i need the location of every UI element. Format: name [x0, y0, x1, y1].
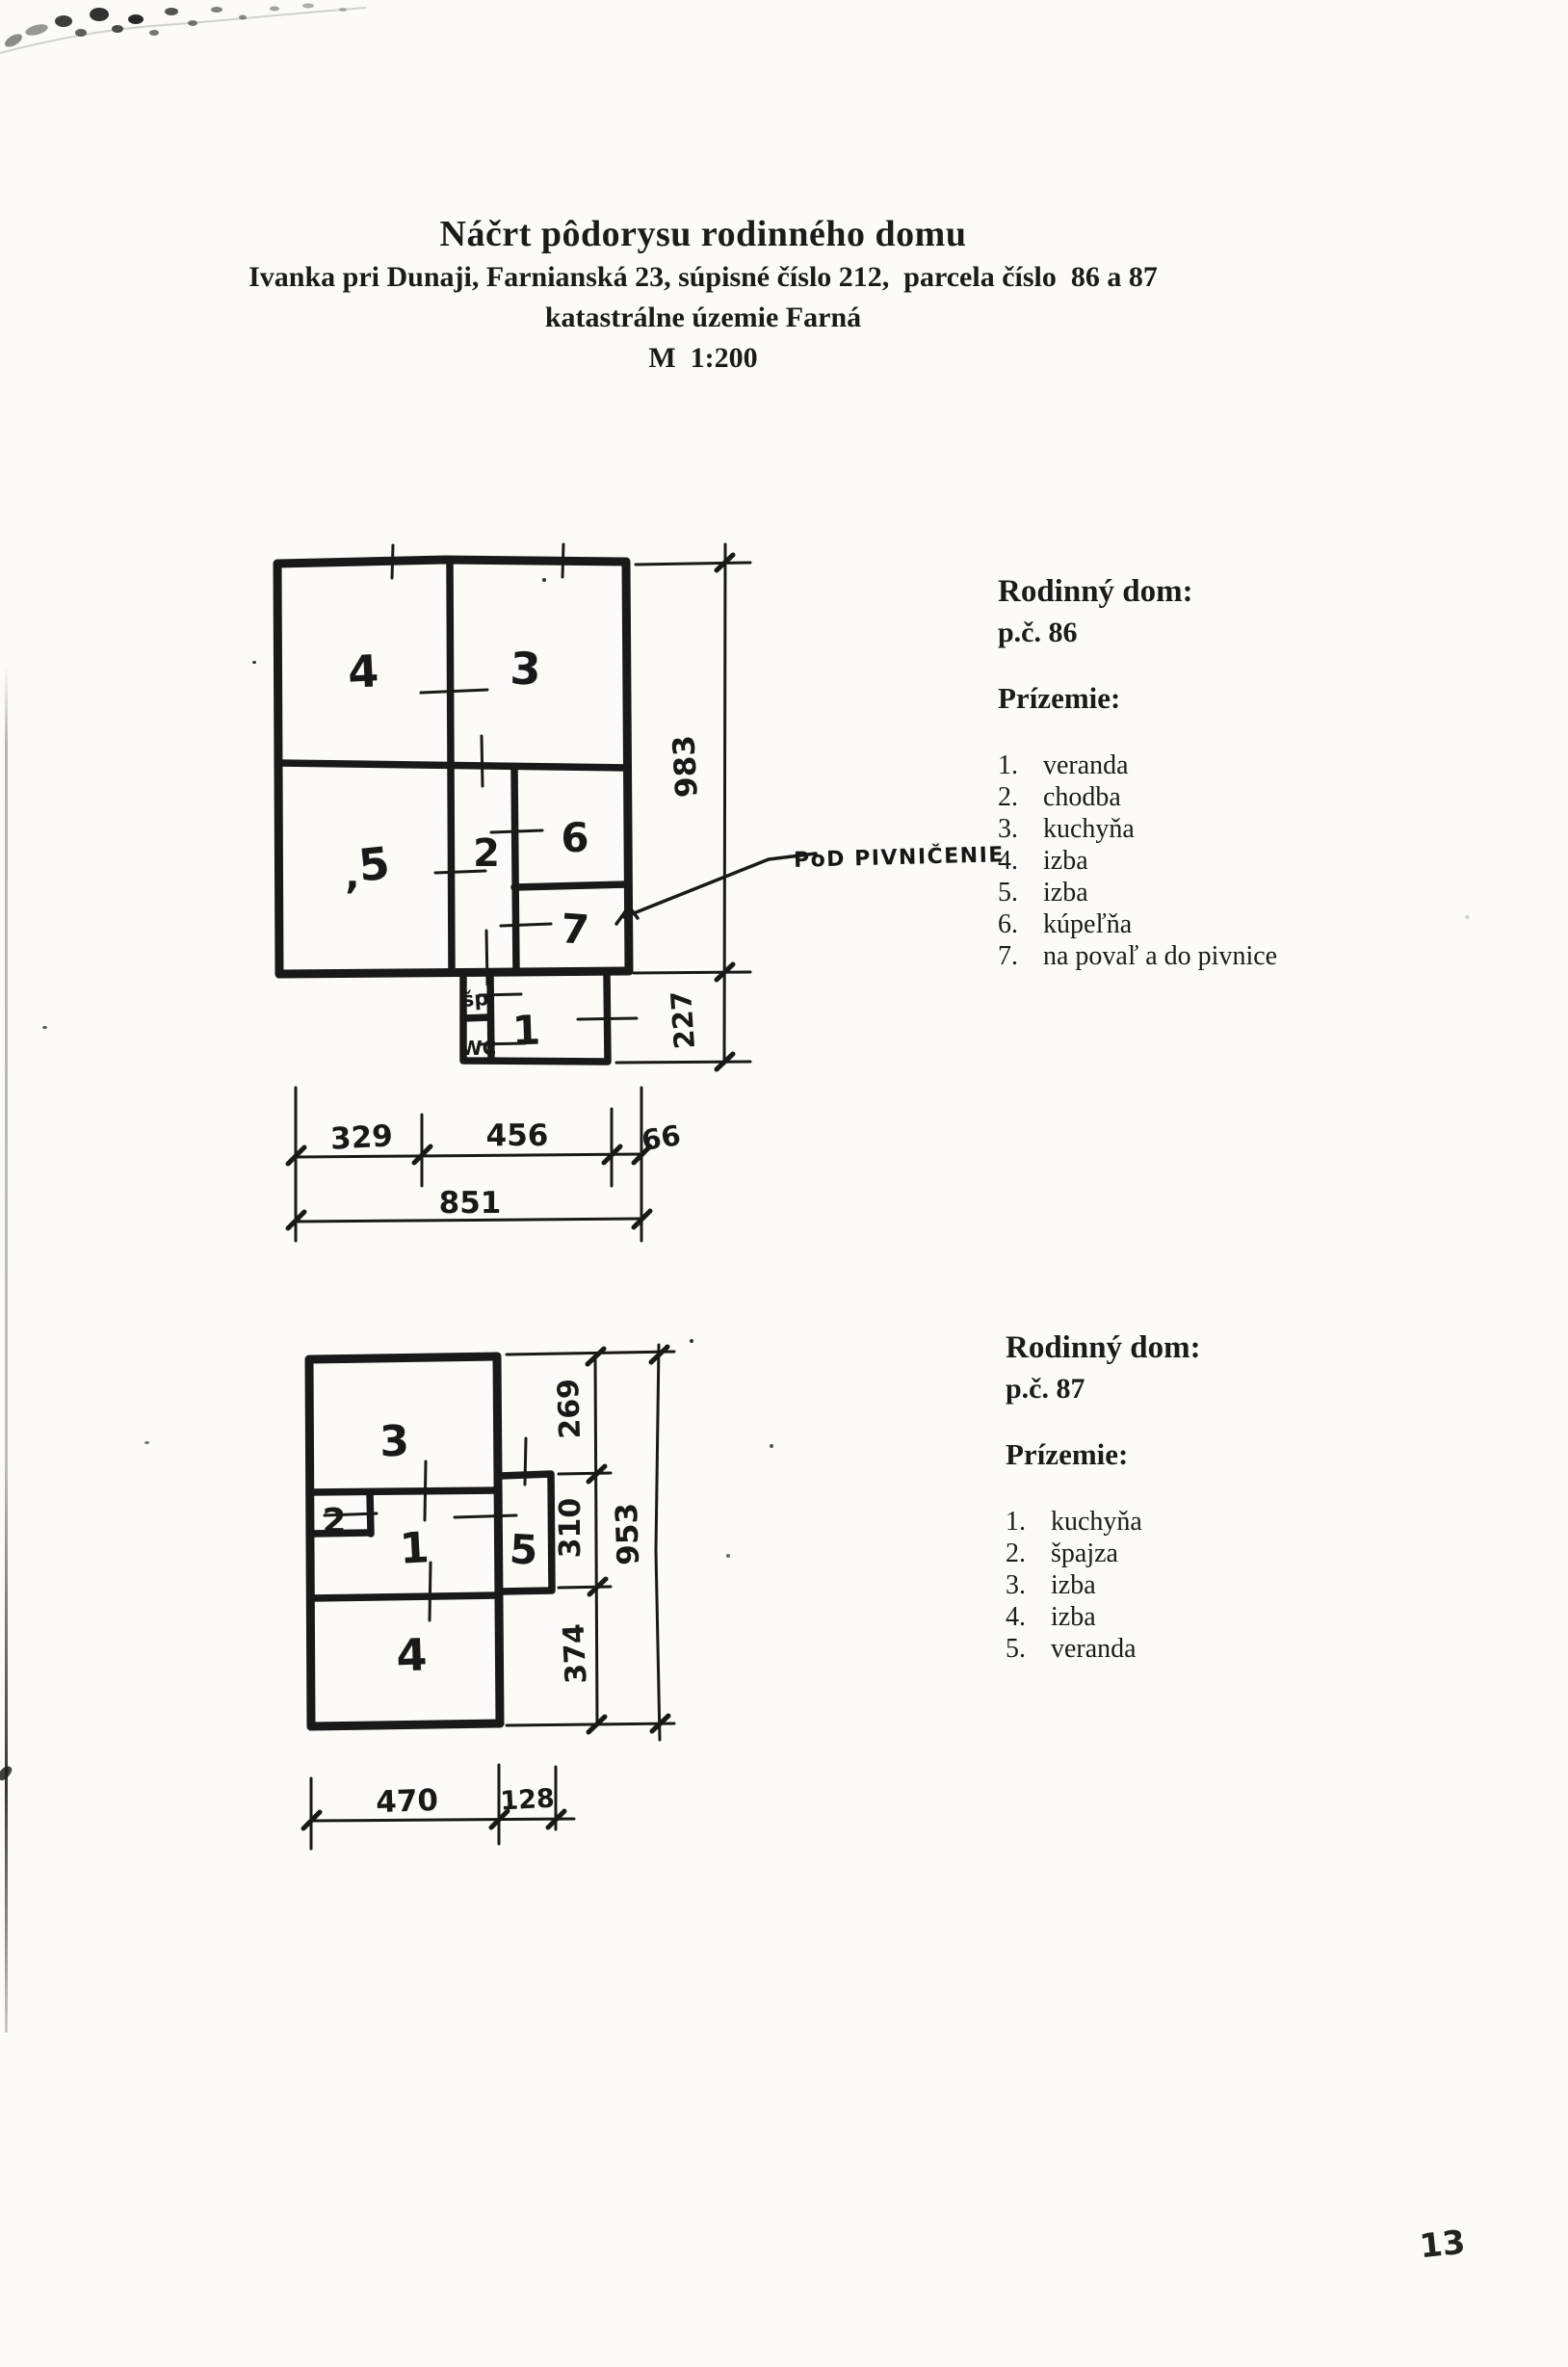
scan-speck	[144, 1441, 149, 1444]
plan87-dim-d1: 269	[552, 1378, 588, 1439]
item-number: 7.	[998, 940, 1043, 972]
plan87-room-2-label: 2	[322, 1502, 346, 1541]
item-number: 4.	[998, 845, 1043, 877]
plan87-dim-d3: 374	[557, 1622, 593, 1684]
legend86-item-4: 4.izba	[998, 845, 1499, 877]
plan86-room-5-label: 5	[356, 837, 392, 892]
floor-plan-87-drawing: 3 2 1 5 4 269 310 374 953 470 128	[289, 1329, 684, 1869]
legend87-item-2: 2.špajza	[1006, 1538, 1506, 1569]
scan-speck	[690, 1339, 693, 1343]
legend86-floor-heading: Prízemie:	[998, 681, 1499, 715]
item-label: izba	[1051, 1569, 1506, 1601]
legend86-item-5: 5.izba	[998, 877, 1499, 908]
plan86-room-1-label: 1	[511, 1007, 541, 1055]
floor-plan-86-drawing: 4 3 5 , 2 6 7 1 šp WC 983 227 329 456 66…	[241, 520, 828, 1262]
item-label: kuchyňa	[1043, 813, 1499, 845]
plan87-dim-d2: 310	[554, 1498, 588, 1559]
legend86-item-6: 6.kúpeľňa	[998, 908, 1499, 940]
item-label: veranda	[1051, 1633, 1506, 1665]
plan86-room-2-label: 2	[473, 831, 500, 876]
item-number: 5.	[1006, 1633, 1051, 1665]
title-block: Náčrt pôdorysu rodinného domu Ivanka pri…	[164, 212, 1242, 379]
item-label: izba	[1043, 845, 1499, 877]
plan87-room-5-label: 5	[509, 1525, 539, 1573]
item-label: na povaľ a do pivnice	[1043, 940, 1499, 972]
item-number: 3.	[998, 813, 1043, 845]
plan86-room-4-label: 4	[347, 644, 380, 698]
legend87-item-3: 3.izba	[1006, 1569, 1506, 1601]
scan-smudge-artifact	[0, 0, 405, 106]
plan87-room-4-label: 4	[396, 1628, 429, 1681]
scan-speck	[726, 1554, 730, 1558]
legend86-room-list: 1.veranda 2.chodba 3.kuchyňa 4.izba 5.iz…	[998, 750, 1499, 972]
legend86-parcel-number: p.č. 86	[998, 617, 1499, 648]
plan86-room-3-label: 3	[510, 642, 542, 695]
legend86-item-7: 7.na povaľ a do pivnice	[998, 940, 1499, 972]
plan87-dimension-ticks	[303, 1347, 668, 1828]
legend87-item-1: 1.kuchyňa	[1006, 1506, 1506, 1538]
plan86-wc-label: WC	[461, 1037, 497, 1060]
title-line-3: katastrálne územie Farná	[164, 298, 1242, 338]
legend87-room-list: 1.kuchyňa 2.špajza 3.izba 4.izba 5.veran…	[1006, 1506, 1506, 1665]
plan86-dim-w1: 329	[329, 1118, 394, 1156]
item-number: 6.	[998, 908, 1043, 940]
scan-speck	[770, 1444, 773, 1448]
plan86-dim-w2: 456	[486, 1118, 549, 1153]
item-number: 4.	[1006, 1601, 1051, 1633]
page-number: 13	[1418, 2223, 1467, 2267]
scanned-document-page: Náčrt pôdorysu rodinného domu Ivanka pri…	[0, 0, 1568, 2367]
plan86-pantry-label: šp	[461, 986, 489, 1012]
item-number: 3.	[1006, 1569, 1051, 1601]
item-number: 1.	[998, 750, 1043, 781]
title-line-2: Ivanka pri Dunaji, Farnianská 23, súpisn…	[164, 257, 1242, 298]
item-label: izba	[1043, 877, 1499, 908]
legend87-item-5: 5.veranda	[1006, 1633, 1506, 1665]
legend86-item-3: 3.kuchyňa	[998, 813, 1499, 845]
pod-pivnicenie-annotation: PoD PIVNIČENIE	[794, 843, 1005, 873]
item-number: 5.	[998, 877, 1043, 908]
plan86-dim-w3: 66	[640, 1118, 683, 1157]
item-label: špajza	[1051, 1538, 1506, 1569]
scan-speck	[42, 1026, 47, 1029]
legend87-item-4: 4.izba	[1006, 1601, 1506, 1633]
title-line-4-scale: M 1:200	[164, 338, 1242, 379]
scan-edge-line-artifact	[5, 665, 8, 2033]
item-label: kúpeľňa	[1043, 908, 1499, 940]
legend87-parcel-number: p.č. 87	[1006, 1373, 1506, 1405]
plan87-dim-w1: 470	[376, 1783, 439, 1820]
title-line-1: Náčrt pôdorysu rodinného domu	[164, 212, 1242, 257]
legend87-floor-heading: Prízemie:	[1006, 1437, 1506, 1471]
item-label: veranda	[1043, 750, 1499, 781]
item-number: 2.	[1006, 1538, 1051, 1569]
legend86-item-2: 2.chodba	[998, 781, 1499, 813]
plan86-leader-line	[616, 854, 816, 924]
plan86-dim-total-width: 851	[439, 1186, 502, 1221]
item-label: izba	[1051, 1601, 1506, 1633]
plan86-stray-mark: ,	[345, 854, 359, 898]
item-label: kuchyňa	[1051, 1506, 1506, 1538]
item-number: 2.	[998, 781, 1043, 813]
item-number: 1.	[1006, 1506, 1051, 1538]
legend-house-87: Rodinný dom: p.č. 87 Prízemie: 1.kuchyňa…	[1006, 1330, 1506, 1665]
plan87-room-3-label: 3	[379, 1416, 409, 1466]
plan86-dim-veranda-height: 227	[665, 989, 701, 1050]
item-label: chodba	[1043, 781, 1499, 813]
plan86-room-7-label: 7	[560, 905, 591, 954]
legend86-item-1: 1.veranda	[998, 750, 1499, 781]
plan86-dim-height: 983	[666, 734, 704, 799]
plan86-inner-walls	[278, 562, 628, 1062]
legend87-heading: Rodinný dom:	[1006, 1330, 1506, 1366]
legend-house-86: Rodinný dom: p.č. 86 Prízemie: 1.veranda…	[998, 574, 1499, 972]
plan87-dim-total-height: 953	[610, 1502, 646, 1565]
plan87-room-1-label: 1	[399, 1523, 431, 1574]
plan86-room-6-label: 6	[561, 814, 588, 861]
legend86-heading: Rodinný dom:	[998, 574, 1499, 610]
plan87-dim-w2: 128	[500, 1784, 556, 1817]
